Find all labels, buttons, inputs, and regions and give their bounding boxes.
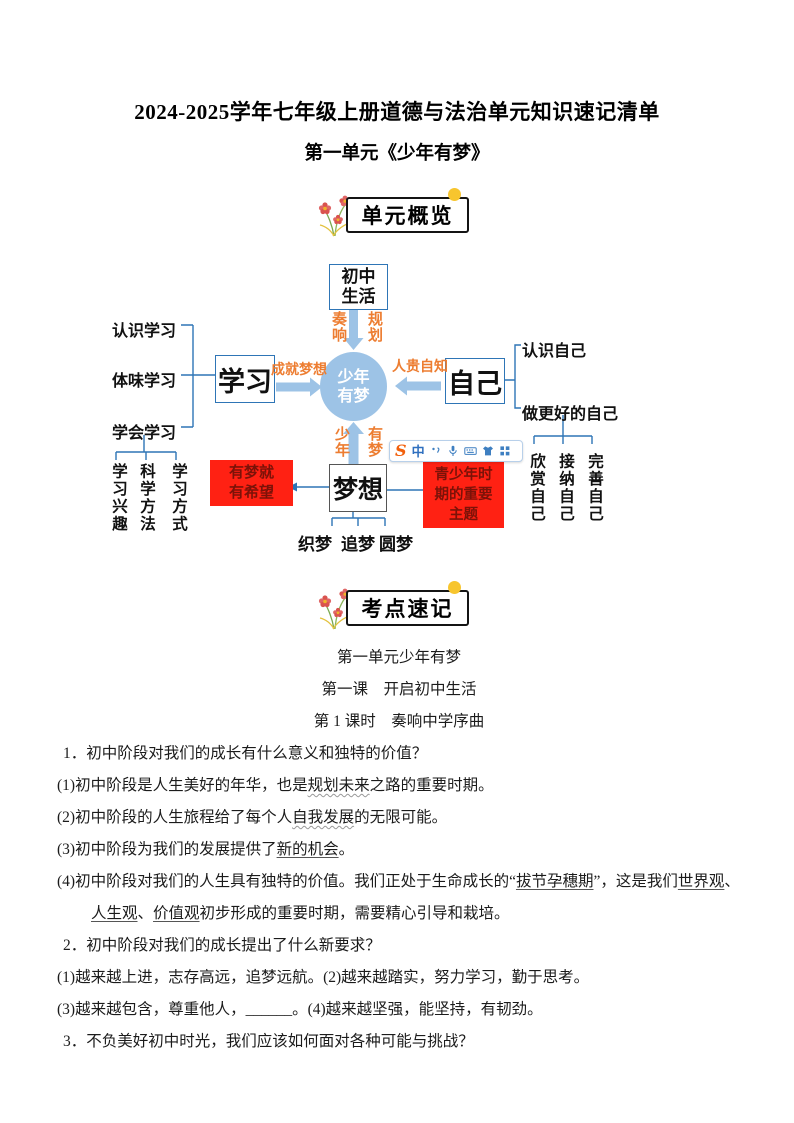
- unit-subtitle: 第一单元《少年有梦》: [0, 139, 794, 165]
- subitem-accept-self: 接纳自己: [554, 453, 576, 525]
- item-become-better-self: 做更好的自己: [522, 400, 618, 424]
- answer-1-4-underlined2: 世界观: [678, 869, 725, 891]
- item-learn-to-learn: 学会学习: [112, 419, 176, 443]
- thick-arrow-left-icon: [395, 377, 441, 396]
- answer-1-4-text: (4)初中阶段对我们的人生具有独特的价值。我们正处于生命成长的“: [57, 869, 516, 891]
- flower-blossom-1: [319, 595, 331, 607]
- label-know-thyself: 人贵自知: [392, 356, 448, 376]
- answer-1-3: (3)初中阶段为我们的发展提供了新的机会。: [57, 832, 741, 864]
- node-dream: 梦想: [329, 464, 387, 512]
- keypoints-section-badge: 考点速记: [318, 581, 488, 635]
- ime-toolbar[interactable]: S 中: [389, 440, 523, 462]
- node-junior-high-life: 初中 生活: [329, 264, 388, 310]
- answer-1-2-underlined: 自我发展: [292, 805, 354, 827]
- subitem-learning-style: 学习方式: [167, 463, 189, 539]
- center-line1: 少年: [337, 368, 369, 387]
- overview-badge-box: 单元概览: [346, 197, 469, 233]
- ime-chinese-mode-button[interactable]: 中: [412, 445, 425, 458]
- redbox-right-line1: 青少年时: [435, 465, 493, 485]
- toolbox-icon[interactable]: [499, 445, 511, 457]
- keypoints-notes: 第一单元少年有梦 第一课 开启初中生活 第 1 课时 奏响中学序曲 1．初中阶段…: [57, 640, 741, 1056]
- yellow-dot-icon: [448, 188, 461, 201]
- question-2: 2．初中阶段对我们的成长提出了什么新要求？: [57, 928, 741, 960]
- unit-mindmap-diagram: 初中 生活 奏响 规划 少年 有梦 学习 成就梦想 自己 人贵自知 认识学习 体…: [0, 250, 794, 572]
- redbox-dream-brings-hope: 有梦就 有希望: [210, 460, 293, 506]
- answer-1-2-text2: 的无限可能。: [354, 805, 447, 827]
- flower-blossom-3: [333, 215, 343, 224]
- document-title: 2024-2025学年七年级上册道德与法治单元知识速记清单: [0, 96, 794, 126]
- item-realize-dream: 圆梦: [379, 530, 413, 555]
- node-junior-high-life-line2: 生活: [342, 287, 376, 307]
- sogou-logo-icon[interactable]: S: [395, 443, 407, 459]
- node-self: 自己: [445, 358, 505, 404]
- skin-icon[interactable]: [482, 445, 494, 457]
- answer-1-3-underlined: 新的机会: [277, 837, 339, 859]
- keypoints-badge-label: 考点速记: [362, 593, 454, 623]
- notes-heading-unit: 第一单元少年有梦: [57, 640, 741, 672]
- answer-1-4-underlined3: 人生观: [91, 901, 138, 923]
- answer-1-4-underlined1: 拔节孕穗期: [516, 869, 594, 891]
- question-1: 1．初中阶段对我们的成长有什么意义和独特的价值？: [57, 736, 741, 768]
- node-junior-high-life-line1: 初中: [342, 267, 376, 287]
- redbox-right-line3: 主题: [449, 505, 478, 525]
- label-has-dream: 有梦: [364, 426, 385, 458]
- answer-1-4-line2: 人生观、价值观初步形成的重要时期，需要精心引导和栽培。: [57, 896, 741, 928]
- notes-heading-lesson: 第一课 开启初中生活: [57, 672, 741, 704]
- keypoints-badge-box: 考点速记: [346, 590, 469, 626]
- label-achieve-dream: 成就梦想: [271, 359, 327, 379]
- redbox-important-theme-of-youth: 青少年时 期的重要 主题: [423, 462, 504, 528]
- document-page: 2024-2025学年七年级上册道德与法治单元知识速记清单 第一单元《少年有梦》: [0, 0, 794, 1123]
- answer-1-1-underlined: 规划未来: [308, 773, 370, 795]
- flower-blossom-1: [319, 202, 331, 214]
- item-chase-dream: 追梦: [341, 530, 375, 555]
- answer-1-2: (2)初中阶段的人生旅程给了每个人自我发展的无限可能。: [57, 800, 741, 832]
- node-learning: 学习: [215, 355, 275, 403]
- item-know-self: 认识自己: [522, 337, 586, 361]
- question-3: 3．不负美好初中时光，我们应该如何面对各种可能与挑战？: [57, 1024, 741, 1056]
- keyboard-icon[interactable]: [464, 445, 477, 457]
- answer-2-1: (1)越来越上进，志存高远，追梦远航。(2)越来越踏实，努力学习，勤于思考。: [57, 960, 741, 992]
- answer-1-1-text: (1)初中阶段是人生美好的年华，也是: [57, 773, 308, 795]
- item-understand-learning: 认识学习: [112, 317, 176, 341]
- left-bracket-line: [181, 325, 215, 427]
- redbox-right-line2: 期的重要: [435, 485, 493, 505]
- answer-1-1-text2: 之路的重要时期。: [370, 773, 494, 795]
- node-youth-dream-center: 少年 有梦: [320, 352, 387, 421]
- subitem-scientific-method: 科学方法: [135, 463, 157, 539]
- answer-1-4-text4: 、: [138, 901, 154, 923]
- redbox-left-line1: 有梦就: [229, 463, 274, 483]
- answer-2-2: (3)越来越包含，尊重他人，______。(4)越来越坚强，能坚持，有韧劲。: [57, 992, 741, 1024]
- answer-1-4-underlined4: 价值观: [153, 901, 200, 923]
- answer-1-4-text5: 初步形成的重要时期，需要精心引导和栽培。: [200, 901, 510, 923]
- item-experience-learning: 体味学习: [112, 367, 176, 391]
- right-bracket-line: [503, 345, 521, 408]
- yellow-dot-icon: [448, 581, 461, 594]
- overview-section-badge: 单元概览: [318, 188, 488, 242]
- label-youth: 少年: [331, 426, 352, 458]
- notes-heading-period: 第 1 课时 奏响中学序曲: [57, 704, 741, 736]
- answer-1-2-text: (2)初中阶段的人生旅程给了每个人: [57, 805, 292, 827]
- subitem-learning-interest: 学习兴趣: [107, 463, 129, 539]
- label-play-prelude: 奏响: [328, 311, 349, 343]
- answer-1-3-text: (3)初中阶段为我们的发展提供了: [57, 837, 277, 859]
- answer-1-1: (1)初中阶段是人生美好的年华，也是规划未来之路的重要时期。: [57, 768, 741, 800]
- answer-1-3-text2: 。: [339, 837, 355, 859]
- punctuation-icon[interactable]: [430, 445, 442, 457]
- subitem-appreciate-self: 欣赏自己: [525, 453, 547, 525]
- thick-arrow-right-icon: [276, 378, 322, 397]
- dream-bottom-bracket-line: [332, 510, 385, 526]
- microphone-icon[interactable]: [447, 445, 459, 457]
- overview-badge-label: 单元概览: [362, 200, 454, 230]
- answer-1-4-line1: (4)初中阶段对我们的人生具有独特的价值。我们正处于生命成长的“拔节孕穗期”，这…: [57, 864, 741, 896]
- answer-1-4-text2: ”，这是我们: [593, 869, 677, 891]
- answer-1-4-text3: 、: [724, 869, 740, 891]
- flower-blossom-3: [333, 608, 343, 617]
- center-line2: 有梦: [337, 387, 369, 406]
- item-weave-dream: 织梦: [298, 530, 332, 555]
- label-plan: 规划: [364, 311, 385, 343]
- subitem-improve-self: 完善自己: [583, 453, 605, 525]
- redbox-left-line2: 有希望: [229, 483, 274, 503]
